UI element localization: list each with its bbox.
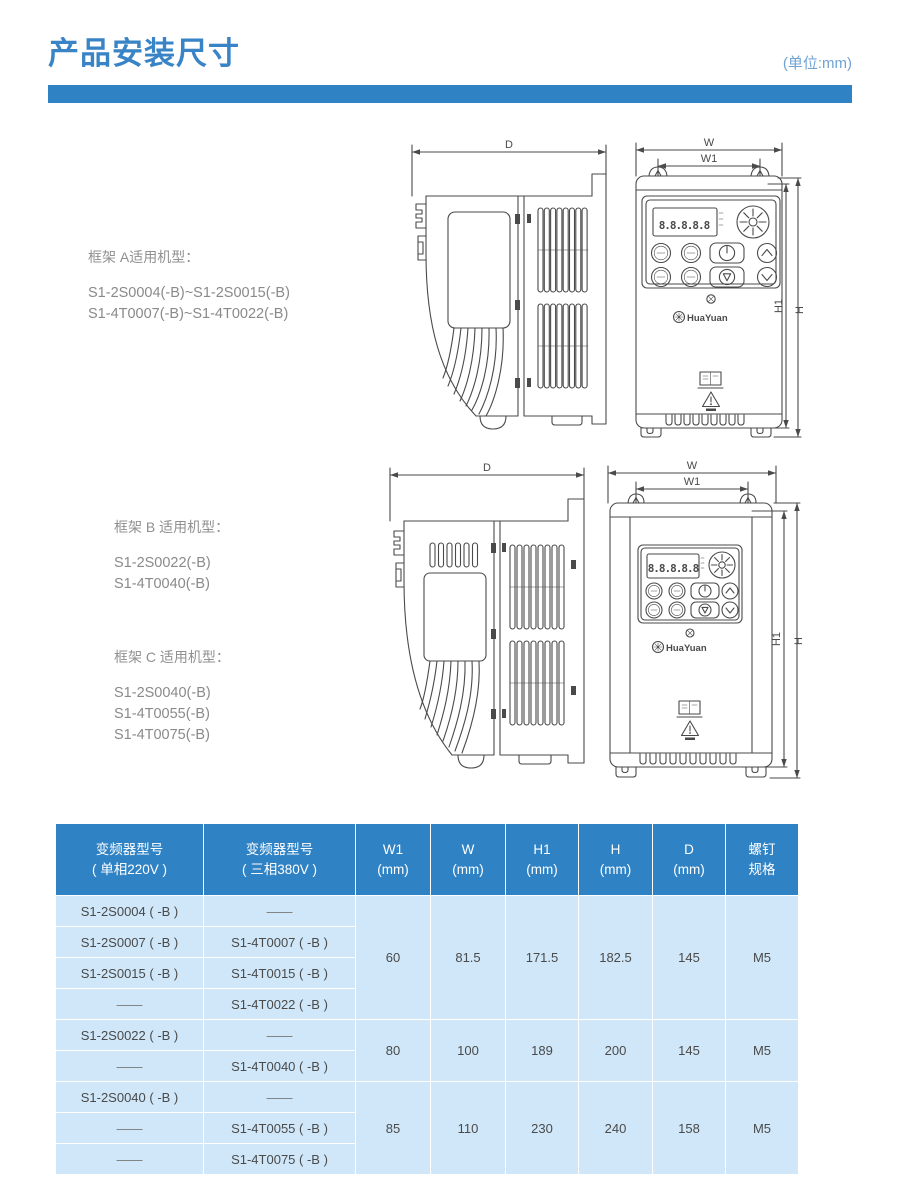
dimension-w-label: W	[687, 461, 698, 472]
vent-grille	[510, 545, 564, 725]
header-model-380v: 变频器型号( 三相380V )	[204, 824, 356, 896]
table-header-row: 变频器型号( 单相220V ) 变频器型号( 三相380V ) W1(mm) W…	[56, 824, 799, 896]
frame-b-model: S1-4T0040(-B)	[114, 574, 229, 595]
cable-fan-lines	[420, 661, 479, 753]
display-value: 8.8.8.8.8	[659, 219, 710, 232]
dimension-w1-label: W1	[701, 153, 718, 165]
manual-book-icon	[677, 701, 702, 717]
manual-book-icon	[698, 372, 723, 388]
terminal-comb	[636, 414, 782, 437]
frame-b-model: S1-2S0022(-B)	[114, 553, 229, 574]
screw-icon	[707, 295, 715, 303]
cell-d: 158	[653, 1082, 726, 1175]
cell-model-380v: S1-4T0015 ( -B )	[204, 958, 356, 989]
dimension-w1: W1	[658, 153, 760, 176]
din-clip-icon	[416, 204, 426, 228]
dimension-table: 变频器型号( 单相220V ) 变频器型号( 三相380V ) W1(mm) W…	[55, 823, 799, 1175]
terminal-comb	[610, 753, 772, 777]
header-h1: H1(mm)	[506, 824, 579, 896]
function-button-icon	[646, 583, 685, 618]
cell-model-380v: S1-4T0022 ( -B )	[204, 989, 356, 1020]
cell-model-380v: ——	[204, 1082, 356, 1113]
dimension-h-label: H	[794, 306, 804, 314]
terminal-cover	[424, 573, 486, 661]
inverter-side-outline	[394, 499, 584, 768]
inverter-front-outline	[636, 167, 782, 428]
keypad: 8.8.8.8.8	[642, 196, 780, 288]
frame-b-section: 框架 B 适用机型： S1-2S0022(-B) S1-4T0040(-B)	[114, 517, 229, 595]
cell-model-220v: S1-2S0040 ( -B )	[56, 1082, 204, 1113]
dimension-h1: H1	[748, 511, 787, 767]
cell-model-220v: ——	[56, 1144, 204, 1175]
cell-h: 200	[579, 1020, 653, 1082]
dimension-h-label: H	[793, 637, 805, 645]
cell-h: 182.5	[579, 896, 653, 1020]
cell-w1: 85	[356, 1082, 431, 1175]
cell-model-380v: S1-4T0040 ( -B )	[204, 1051, 356, 1082]
dimension-d-label: D	[505, 139, 513, 151]
front-view-frame-bc-drawing: W W1 H H1	[600, 461, 805, 781]
warning-triangle-icon	[682, 721, 699, 740]
up-arrow-button-icon	[722, 583, 738, 599]
dimension-h1: H1	[768, 184, 789, 428]
brand-name: HuaYuan	[666, 643, 707, 654]
cell-w: 100	[431, 1020, 506, 1082]
cell-model-380v: S1-4T0055 ( -B )	[204, 1113, 356, 1144]
brand-logo: HuaYuan	[674, 312, 728, 325]
cell-d: 145	[653, 1020, 726, 1082]
cell-model-380v: ——	[204, 896, 356, 927]
table-row: S1-2S0022 ( -B ) —— 80 100 189 200 145 M…	[56, 1020, 799, 1051]
cell-model-220v: S1-2S0007 ( -B )	[56, 927, 204, 958]
cable-fan-lines	[443, 328, 503, 416]
cell-model-380v: S1-4T0075 ( -B )	[204, 1144, 356, 1175]
header-w1: W1(mm)	[356, 824, 431, 896]
dimension-d: D	[390, 462, 584, 521]
dimension-h1-label: H1	[773, 299, 785, 313]
manual-page: 产品安装尺寸 (单位:mm) 框架 A适用机型： S1-2S0004(-B)~S…	[0, 0, 900, 1200]
frame-b-label: 框架 B 适用机型：	[114, 517, 229, 537]
cell-screw: M5	[726, 1020, 799, 1082]
table-row: S1-2S0040 ( -B ) —— 85 110 230 240 158 M…	[56, 1082, 799, 1113]
table-row: S1-2S0004 ( -B ) —— 60 81.5 171.5 182.5 …	[56, 896, 799, 927]
down-arrow-button-icon	[722, 602, 738, 618]
title-divider-bar	[48, 85, 852, 103]
rotary-knob-icon	[709, 552, 735, 578]
housing-clips	[491, 543, 576, 719]
frame-c-model: S1-4T0055(-B)	[114, 704, 230, 725]
side-view-frame-a-drawing: D	[402, 138, 624, 434]
header-d: D(mm)	[653, 824, 726, 896]
cell-screw: M5	[726, 896, 799, 1020]
unit-note: (单位:mm)	[783, 52, 852, 73]
cell-model-220v: S1-2S0015 ( -B )	[56, 958, 204, 989]
header-h: H(mm)	[579, 824, 653, 896]
frame-c-section: 框架 C 适用机型： S1-2S0040(-B) S1-4T0055(-B) S…	[114, 647, 230, 746]
run-button-icon	[710, 243, 744, 263]
frame-a-label: 框架 A适用机型：	[88, 247, 290, 267]
page-title: 产品安装尺寸	[48, 28, 240, 73]
dimension-d-label: D	[483, 462, 491, 474]
cell-d: 145	[653, 896, 726, 1020]
cell-h1: 189	[506, 1020, 579, 1082]
header-w: W(mm)	[431, 824, 506, 896]
cell-model-380v: S1-4T0007 ( -B )	[204, 927, 356, 958]
rotary-knob-icon	[737, 206, 769, 238]
cell-model-220v: ——	[56, 989, 204, 1020]
cell-model-220v: ——	[56, 1051, 204, 1082]
dimension-d: D	[412, 139, 606, 196]
cell-model-220v: S1-2S0022 ( -B )	[56, 1020, 204, 1051]
display-value: 8.8.8.8.8	[648, 562, 699, 575]
cell-w1: 80	[356, 1020, 431, 1082]
din-clip-icon	[394, 531, 404, 555]
cell-w: 110	[431, 1082, 506, 1175]
top-finger-vents	[430, 543, 478, 567]
stop-button-icon	[691, 602, 719, 618]
dimension-w-label: W	[704, 138, 715, 149]
inverter-side-outline	[416, 174, 606, 429]
header-screw: 螺钉规格	[726, 824, 799, 896]
frame-a-model-range: S1-2S0004(-B)~S1-2S0015(-B)	[88, 283, 290, 304]
brand-name: HuaYuan	[687, 313, 728, 324]
dimension-w1: W1	[636, 476, 748, 503]
frame-c-model: S1-4T0075(-B)	[114, 725, 230, 746]
cell-w: 81.5	[431, 896, 506, 1020]
dimension-h1-label: H1	[771, 632, 783, 646]
dimension-w1-label: W1	[684, 476, 701, 488]
frame-a-section: 框架 A适用机型： S1-2S0004(-B)~S1-2S0015(-B) S1…	[88, 247, 290, 325]
warning-triangle-icon	[703, 392, 720, 411]
vent-grille	[538, 208, 588, 388]
function-button-icon	[652, 244, 701, 287]
cell-w1: 60	[356, 896, 431, 1020]
frame-c-model: S1-2S0040(-B)	[114, 683, 230, 704]
frame-c-label: 框架 C 适用机型：	[114, 647, 230, 667]
up-arrow-button-icon	[758, 244, 777, 263]
frame-a-model-range: S1-4T0007(-B)~S1-4T0022(-B)	[88, 304, 290, 325]
inverter-front-outline	[610, 494, 772, 767]
cell-model-220v: S1-2S0004 ( -B )	[56, 896, 204, 927]
cell-h: 240	[579, 1082, 653, 1175]
cell-model-380v: ——	[204, 1020, 356, 1051]
front-view-frame-a-drawing: W W1 H H1	[628, 138, 804, 439]
brand-logo: HuaYuan	[653, 642, 707, 655]
screw-icon	[686, 629, 694, 637]
housing-clips	[515, 214, 531, 388]
terminal-cover	[448, 212, 510, 328]
side-view-frame-bc-drawing: D	[382, 461, 602, 778]
cell-model-220v: ——	[56, 1113, 204, 1144]
cell-h1: 230	[506, 1082, 579, 1175]
run-button-icon	[691, 583, 719, 599]
header-model-220v: 变频器型号( 单相220V )	[56, 824, 204, 896]
keypad: 8.8.8.8.8	[638, 545, 742, 623]
cell-h1: 171.5	[506, 896, 579, 1020]
cell-screw: M5	[726, 1082, 799, 1175]
